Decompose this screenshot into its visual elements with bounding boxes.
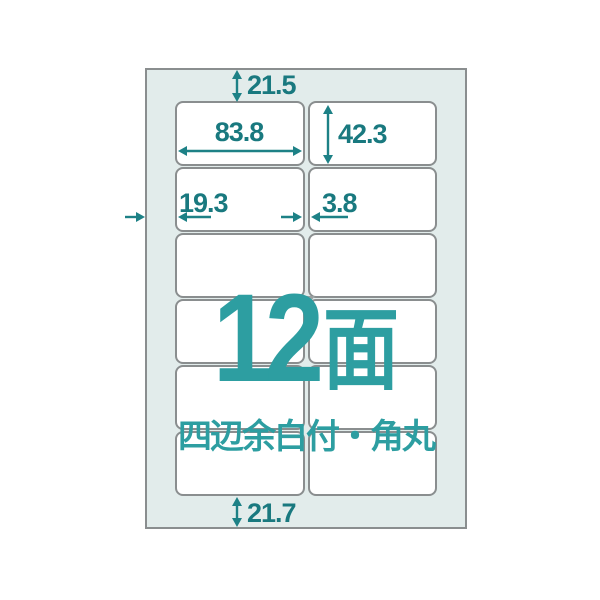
sheet-style-subtitle: 四辺余白付・角丸 [145,420,467,454]
label-width-value: 83.8 [175,119,303,146]
face-count-number: 12 [213,276,317,401]
gap-right-arrow-icon [311,211,348,223]
face-count-unit: 面 [323,306,399,396]
bottom-margin-value: 21.7 [247,500,296,527]
left-margin-arrow-icon [178,211,211,223]
top-margin-arrow-icon [230,70,244,102]
label-height-value: 42.3 [338,121,387,148]
label-width-arrow-icon [178,145,302,157]
gap-left-arrow-icon [281,211,302,223]
product-diagram: 21.5 83.8 42.3 19.3 [0,0,600,600]
face-count-headline: 12 面 [145,276,467,415]
sheet-edge-arrow-icon [125,211,145,223]
top-margin-value: 21.5 [247,72,296,99]
bottom-margin-arrow-icon [230,497,244,527]
label-height-arrow-icon [321,105,335,164]
